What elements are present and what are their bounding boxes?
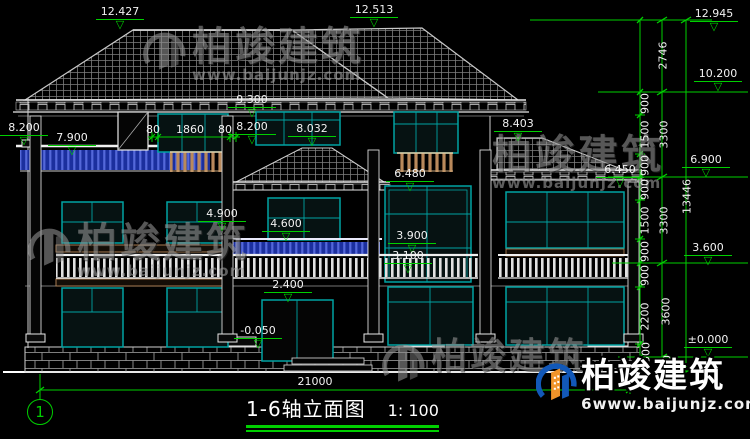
drawing-title-block: 1-6轴立面图 1: 100 [246, 393, 439, 432]
dim-3300-a: 3300 [658, 112, 671, 158]
dim-13446: 13446 [681, 174, 694, 220]
dim-overall-21000: 21000 [280, 375, 350, 388]
elevation-label-ridge-left: 12.427▽ [96, 6, 144, 30]
elevation-label-3600: 3.600▽ [684, 242, 732, 266]
elevation-label-8200-mid: 8.200▽ [228, 121, 276, 145]
drawing-scale: 1: 100 [388, 401, 439, 420]
badge-site-text: 6www.baijunjz.com [581, 395, 750, 413]
dim-2746: 2746 [657, 33, 670, 79]
watermark-top: 柏竣建筑 www.baijunjz.com [143, 26, 364, 84]
elevation-label-4600: 4.600▽ [262, 218, 310, 242]
drawing-title: 1-6轴立面图 [246, 393, 366, 422]
elevation-label-6480: 6.480▽ [386, 168, 434, 192]
elevation-label-8032: 8.032▽ [288, 123, 336, 147]
elevation-label-6450: 6.450▽ [596, 164, 644, 188]
elevation-label-minus-0050: -0.050▽ [234, 325, 282, 349]
axis-bubble-1: 1 [27, 399, 53, 425]
elevation-label-9300: 9.300▽ [228, 94, 276, 118]
baijun-logo-icon [382, 338, 426, 388]
title-underline [246, 425, 439, 428]
elevation-label-2400: 2.400▽ [264, 279, 312, 303]
porch-roof [228, 148, 392, 190]
watermark-brand-text: 柏竣建筑 [192, 26, 364, 68]
elevation-label-ridge-right: 12.513▽ [350, 4, 398, 28]
dim-80-right: 80 [216, 123, 234, 136]
dim-1860: 1860 [166, 123, 214, 136]
baijun-logo-icon [143, 26, 187, 76]
dim-80-left: 80 [144, 123, 162, 136]
elevation-label-3100: 3.100▽ [384, 250, 432, 274]
elevation-label-4900: 4.900▽ [198, 208, 246, 232]
title-underline-2 [246, 430, 439, 432]
dim-900-e: 900 [639, 253, 652, 299]
badge-brand-text: 柏竣建筑 [581, 356, 725, 396]
elevation-label-8403: 8.403▽ [494, 118, 542, 142]
baijun-logo-icon [28, 222, 72, 272]
watermark-site-text: www.baijunjz.com [192, 66, 364, 84]
watermark-badge: 柏竣建筑 6www.baijunjz.com [536, 352, 750, 418]
elevation-label-7900: 7.900▽ [48, 132, 96, 156]
cad-elevation-drawing: 12.427▽ 12.513▽ 12.945▽ 10.200▽ 9.300▽ 8… [0, 0, 750, 439]
dim-3600: 3600 [660, 289, 673, 335]
baijun-color-logo-icon [536, 352, 577, 418]
elevation-label-8200-left: 8.200▽ [0, 122, 48, 146]
watermark-site-text: www.baijunjz.com [77, 262, 249, 280]
dim-3300-b: 3300 [658, 198, 671, 244]
elevation-label-10200: 10.200▽ [694, 68, 742, 92]
elevation-label-roof-top: 12.945▽ [690, 8, 738, 32]
